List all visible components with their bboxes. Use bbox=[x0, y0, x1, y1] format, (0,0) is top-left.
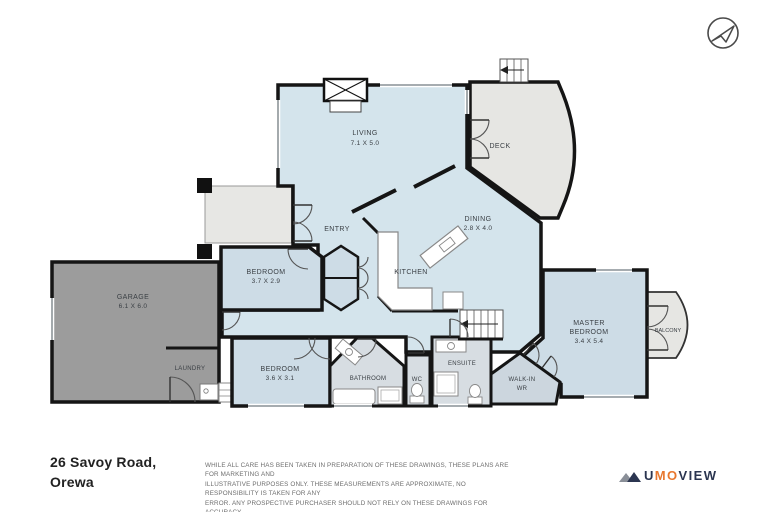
exterior-steps bbox=[219, 383, 231, 402]
label-garage: GARAGE bbox=[117, 294, 149, 301]
fireplace bbox=[324, 79, 367, 112]
umoview-mountain-icon bbox=[617, 467, 641, 483]
oven bbox=[443, 292, 463, 309]
room-balcony bbox=[647, 292, 688, 358]
label-master: MASTER bbox=[573, 320, 605, 327]
label-bedroom3-dims: 3.6 X 3.1 bbox=[266, 375, 295, 382]
internal-stairs bbox=[458, 310, 503, 339]
label-kitchen: KITCHEN bbox=[394, 269, 428, 276]
floor-plan-drawing: LIVING 7.1 X 5.0 DECK ENTRY DINING 2.8 X… bbox=[0, 0, 768, 512]
label-garage-dims: 6.1 X 6.0 bbox=[119, 303, 148, 310]
logo-text-u: U bbox=[644, 468, 655, 483]
label-bedroom3: BEDROOM bbox=[261, 366, 300, 373]
disclaimer-line: ERROR. ANY PROSPECTIVE PURCHASER SHOULD … bbox=[205, 499, 515, 512]
floor-plan-page: LIVING 7.1 X 5.0 DECK ENTRY DINING 2.8 X… bbox=[0, 0, 768, 512]
logo-text-view: VIEW bbox=[679, 468, 718, 483]
label-bedroom2-dims: 3.7 X 2.9 bbox=[252, 278, 281, 285]
bathroom-sink bbox=[346, 349, 353, 356]
label-dining-dims: 2.8 X 4.0 bbox=[464, 225, 493, 232]
label-walkin2: WR bbox=[517, 386, 528, 392]
label-bathroom: BATHROOM bbox=[350, 376, 387, 382]
address-line1: 26 Savoy Road, bbox=[50, 452, 156, 472]
disclaimer-text: WHILE ALL CARE HAS BEEN TAKEN IN PREPARA… bbox=[205, 461, 515, 512]
label-walkin: WALK-IN bbox=[509, 377, 536, 383]
porch-pillar bbox=[197, 244, 212, 259]
label-balcony: BALCONY bbox=[655, 328, 682, 334]
ensuite-sink bbox=[448, 343, 455, 350]
ensuite-shower bbox=[434, 372, 458, 396]
address-line2: Orewa bbox=[50, 472, 156, 492]
room-ensuite bbox=[432, 337, 491, 406]
label-master-dims: 3.4 X 5.4 bbox=[575, 338, 604, 345]
wardrobe bbox=[324, 246, 358, 310]
umoview-logo: UMOVIEW bbox=[617, 467, 717, 483]
label-ensuite: ENSUITE bbox=[448, 361, 476, 367]
logo-text-mo: MO bbox=[655, 468, 679, 483]
shower bbox=[378, 387, 402, 404]
porch-pillar bbox=[197, 178, 212, 193]
deck-stairs bbox=[500, 59, 528, 82]
disclaimer-line: ILLUSTRATIVE PURPOSES ONLY. THESE MEASUR… bbox=[205, 480, 515, 499]
disclaimer-line: WHILE ALL CARE HAS BEEN TAKEN IN PREPARA… bbox=[205, 461, 515, 480]
label-master2: BEDROOM bbox=[570, 329, 609, 336]
toilet bbox=[410, 396, 424, 403]
label-laundry: LAUNDRY bbox=[175, 366, 206, 372]
label-living-dims: 7.1 X 5.0 bbox=[351, 140, 380, 147]
label-bedroom2: BEDROOM bbox=[247, 269, 286, 276]
north-arrow-icon bbox=[708, 18, 738, 48]
property-address: 26 Savoy Road, Orewa bbox=[50, 452, 156, 493]
label-wc: WC bbox=[412, 377, 423, 383]
label-dining: DINING bbox=[465, 216, 492, 223]
label-entry: ENTRY bbox=[324, 226, 350, 233]
label-living: LIVING bbox=[352, 130, 377, 137]
room-bathroom bbox=[330, 338, 404, 406]
ensuite-toilet bbox=[468, 397, 482, 404]
room-garage bbox=[52, 262, 219, 402]
washing-machine bbox=[200, 384, 218, 400]
bathtub bbox=[333, 389, 375, 404]
label-deck: DECK bbox=[489, 143, 510, 150]
